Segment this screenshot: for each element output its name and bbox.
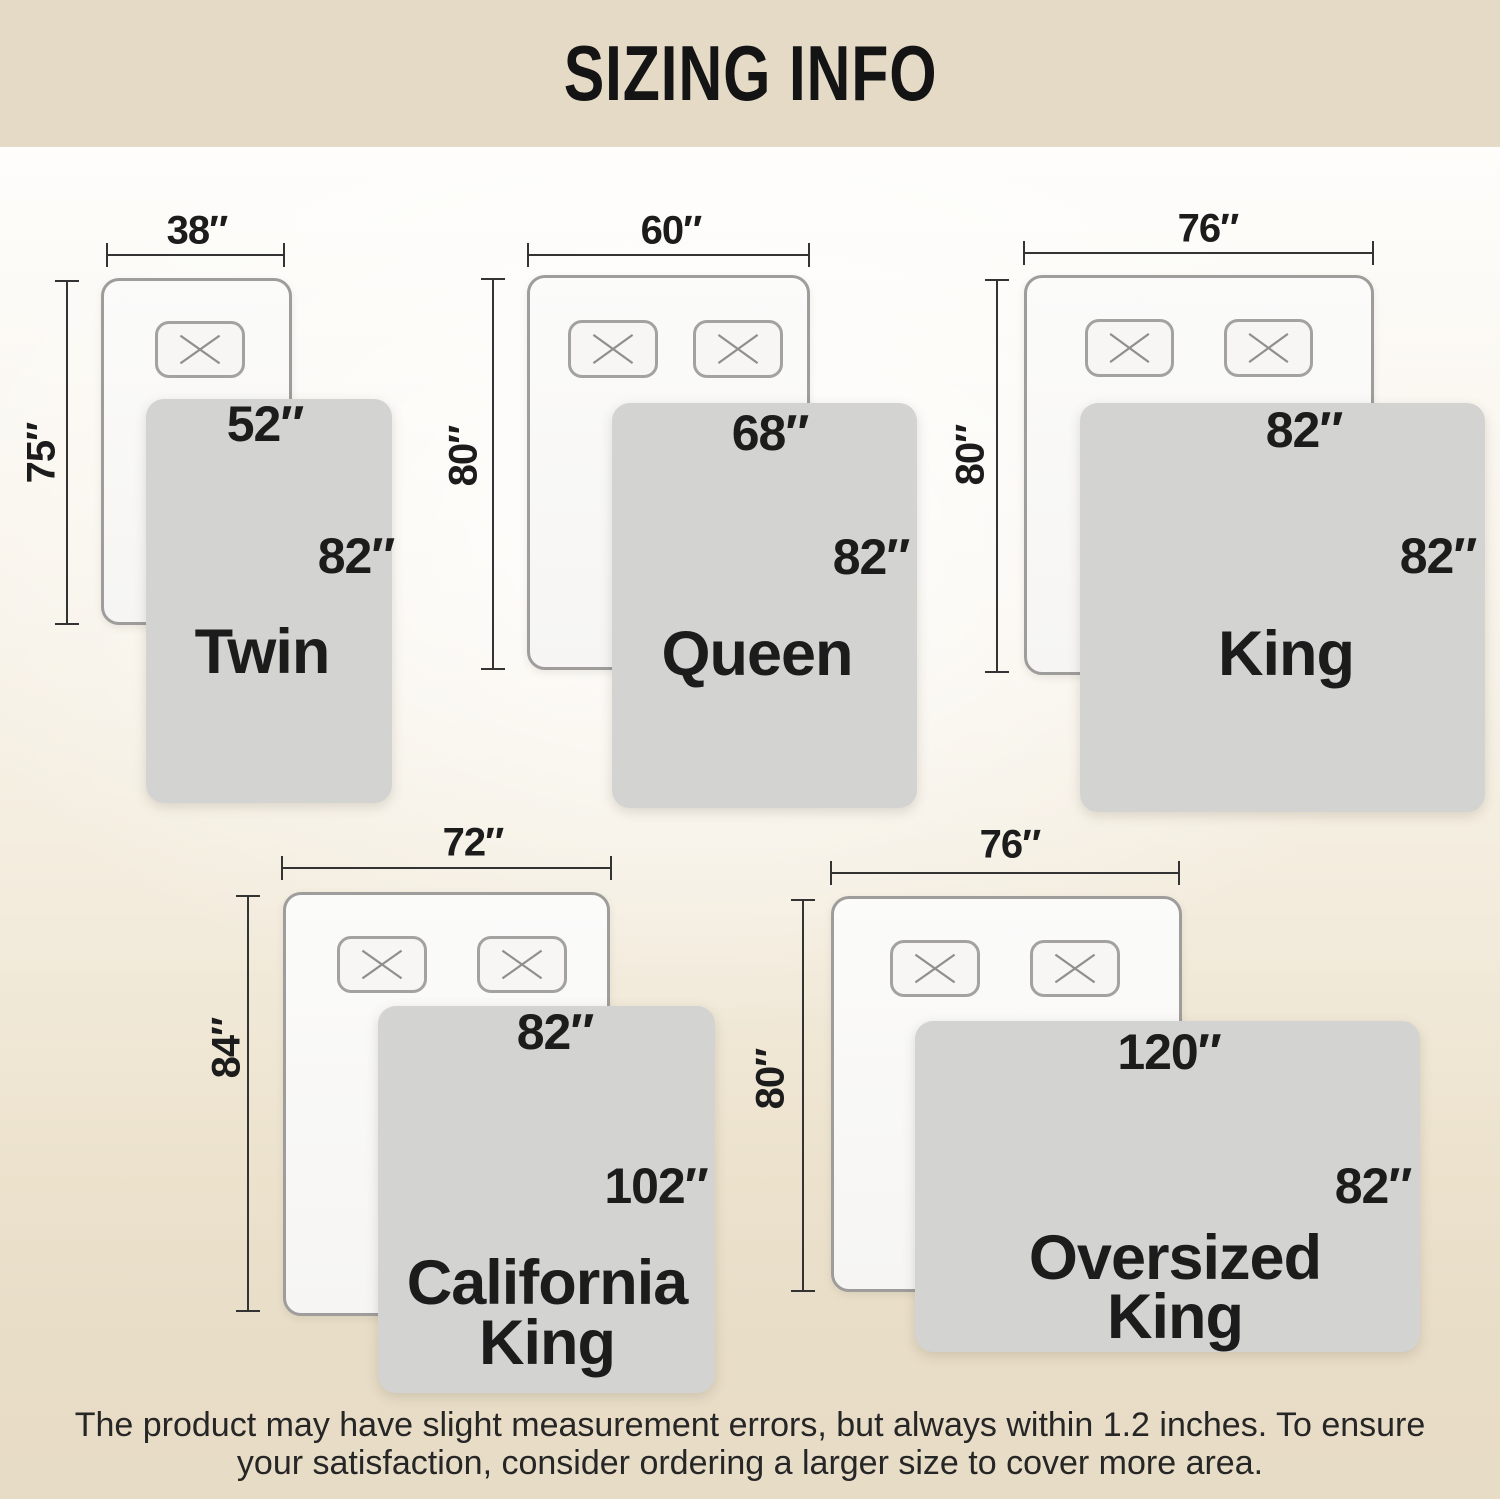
queen-pillow-left (568, 320, 658, 378)
twin-bed-height-label: 75″ (20, 423, 65, 484)
queen-bed-width-label: 60″ (641, 209, 702, 254)
california-king-height-dimension-line (247, 895, 249, 1312)
king-size-name: King (1218, 618, 1354, 690)
pillow-x-icon (696, 323, 780, 375)
king-blanket-width-label: 82″ (1266, 401, 1343, 459)
sizing-info-page: SIZING INFO 38″ 75″ 52″ 82″ Twin 60″ 80″ (0, 0, 1500, 1499)
king-blanket-length-label: 82″ (1400, 527, 1477, 585)
twin-blanket (146, 399, 392, 803)
twin-pillow (155, 321, 245, 378)
california-king-bed-width-label: 72″ (443, 821, 504, 866)
king-bed-height-label: 80″ (949, 425, 994, 486)
measurement-disclaimer: The product may have slight measurement … (45, 1406, 1455, 1482)
oversized-king-blanket-length-label: 82″ (1335, 1157, 1412, 1215)
king-height-dimension-line (996, 279, 998, 673)
oversized-king-bed-width-label: 76″ (980, 823, 1041, 868)
header-banner: SIZING INFO (0, 0, 1500, 147)
pillow-x-icon (1227, 322, 1310, 374)
oversized-king-pillow-right (1030, 940, 1120, 997)
queen-blanket-width-label: 68″ (732, 404, 809, 462)
page-title: SIZING INFO (563, 28, 937, 119)
california-king-width-dimension-line (281, 867, 612, 869)
pillow-x-icon (1033, 943, 1117, 994)
oversized-king-pillow-left (890, 940, 980, 997)
oversized-king-width-dimension-line (830, 872, 1180, 874)
california-king-pillow-left (337, 936, 427, 993)
king-pillow-left (1085, 319, 1174, 377)
queen-width-dimension-line (527, 254, 810, 256)
oversized-king-height-dimension-line (802, 899, 804, 1292)
queen-blanket (612, 403, 917, 808)
twin-bed-width-label: 38″ (167, 209, 228, 254)
queen-bed-height-label: 80″ (442, 426, 487, 487)
king-pillow-right (1224, 319, 1313, 377)
california-king-size-name-line2: King (479, 1307, 615, 1379)
queen-pillow-right (693, 320, 783, 378)
california-king-blanket-length-label: 102″ (604, 1157, 707, 1215)
california-king-bed-height-label: 84″ (205, 1018, 250, 1079)
california-king-pillow-right (477, 936, 567, 993)
oversized-king-blanket-width-label: 120″ (1117, 1023, 1220, 1081)
king-bed-width-label: 76″ (1178, 207, 1239, 252)
oversized-king-bed-height-label: 80″ (749, 1049, 794, 1110)
twin-width-dimension-line (106, 254, 285, 256)
pillow-x-icon (1088, 322, 1171, 374)
pillow-x-icon (571, 323, 655, 375)
queen-blanket-length-label: 82″ (833, 528, 910, 586)
pillow-x-icon (158, 324, 242, 375)
pillow-x-icon (480, 939, 564, 990)
twin-blanket-width-label: 52″ (227, 395, 304, 453)
twin-height-dimension-line (66, 280, 68, 625)
oversized-king-size-name-line2: King (1107, 1281, 1243, 1353)
king-width-dimension-line (1023, 252, 1374, 254)
queen-height-dimension-line (492, 278, 494, 670)
queen-size-name: Queen (661, 618, 852, 690)
pillow-x-icon (893, 943, 977, 994)
twin-blanket-length-label: 82″ (318, 527, 395, 585)
king-blanket (1080, 403, 1485, 812)
pillow-x-icon (340, 939, 424, 990)
twin-size-name: Twin (195, 616, 330, 688)
california-king-blanket-width-label: 82″ (517, 1003, 594, 1061)
